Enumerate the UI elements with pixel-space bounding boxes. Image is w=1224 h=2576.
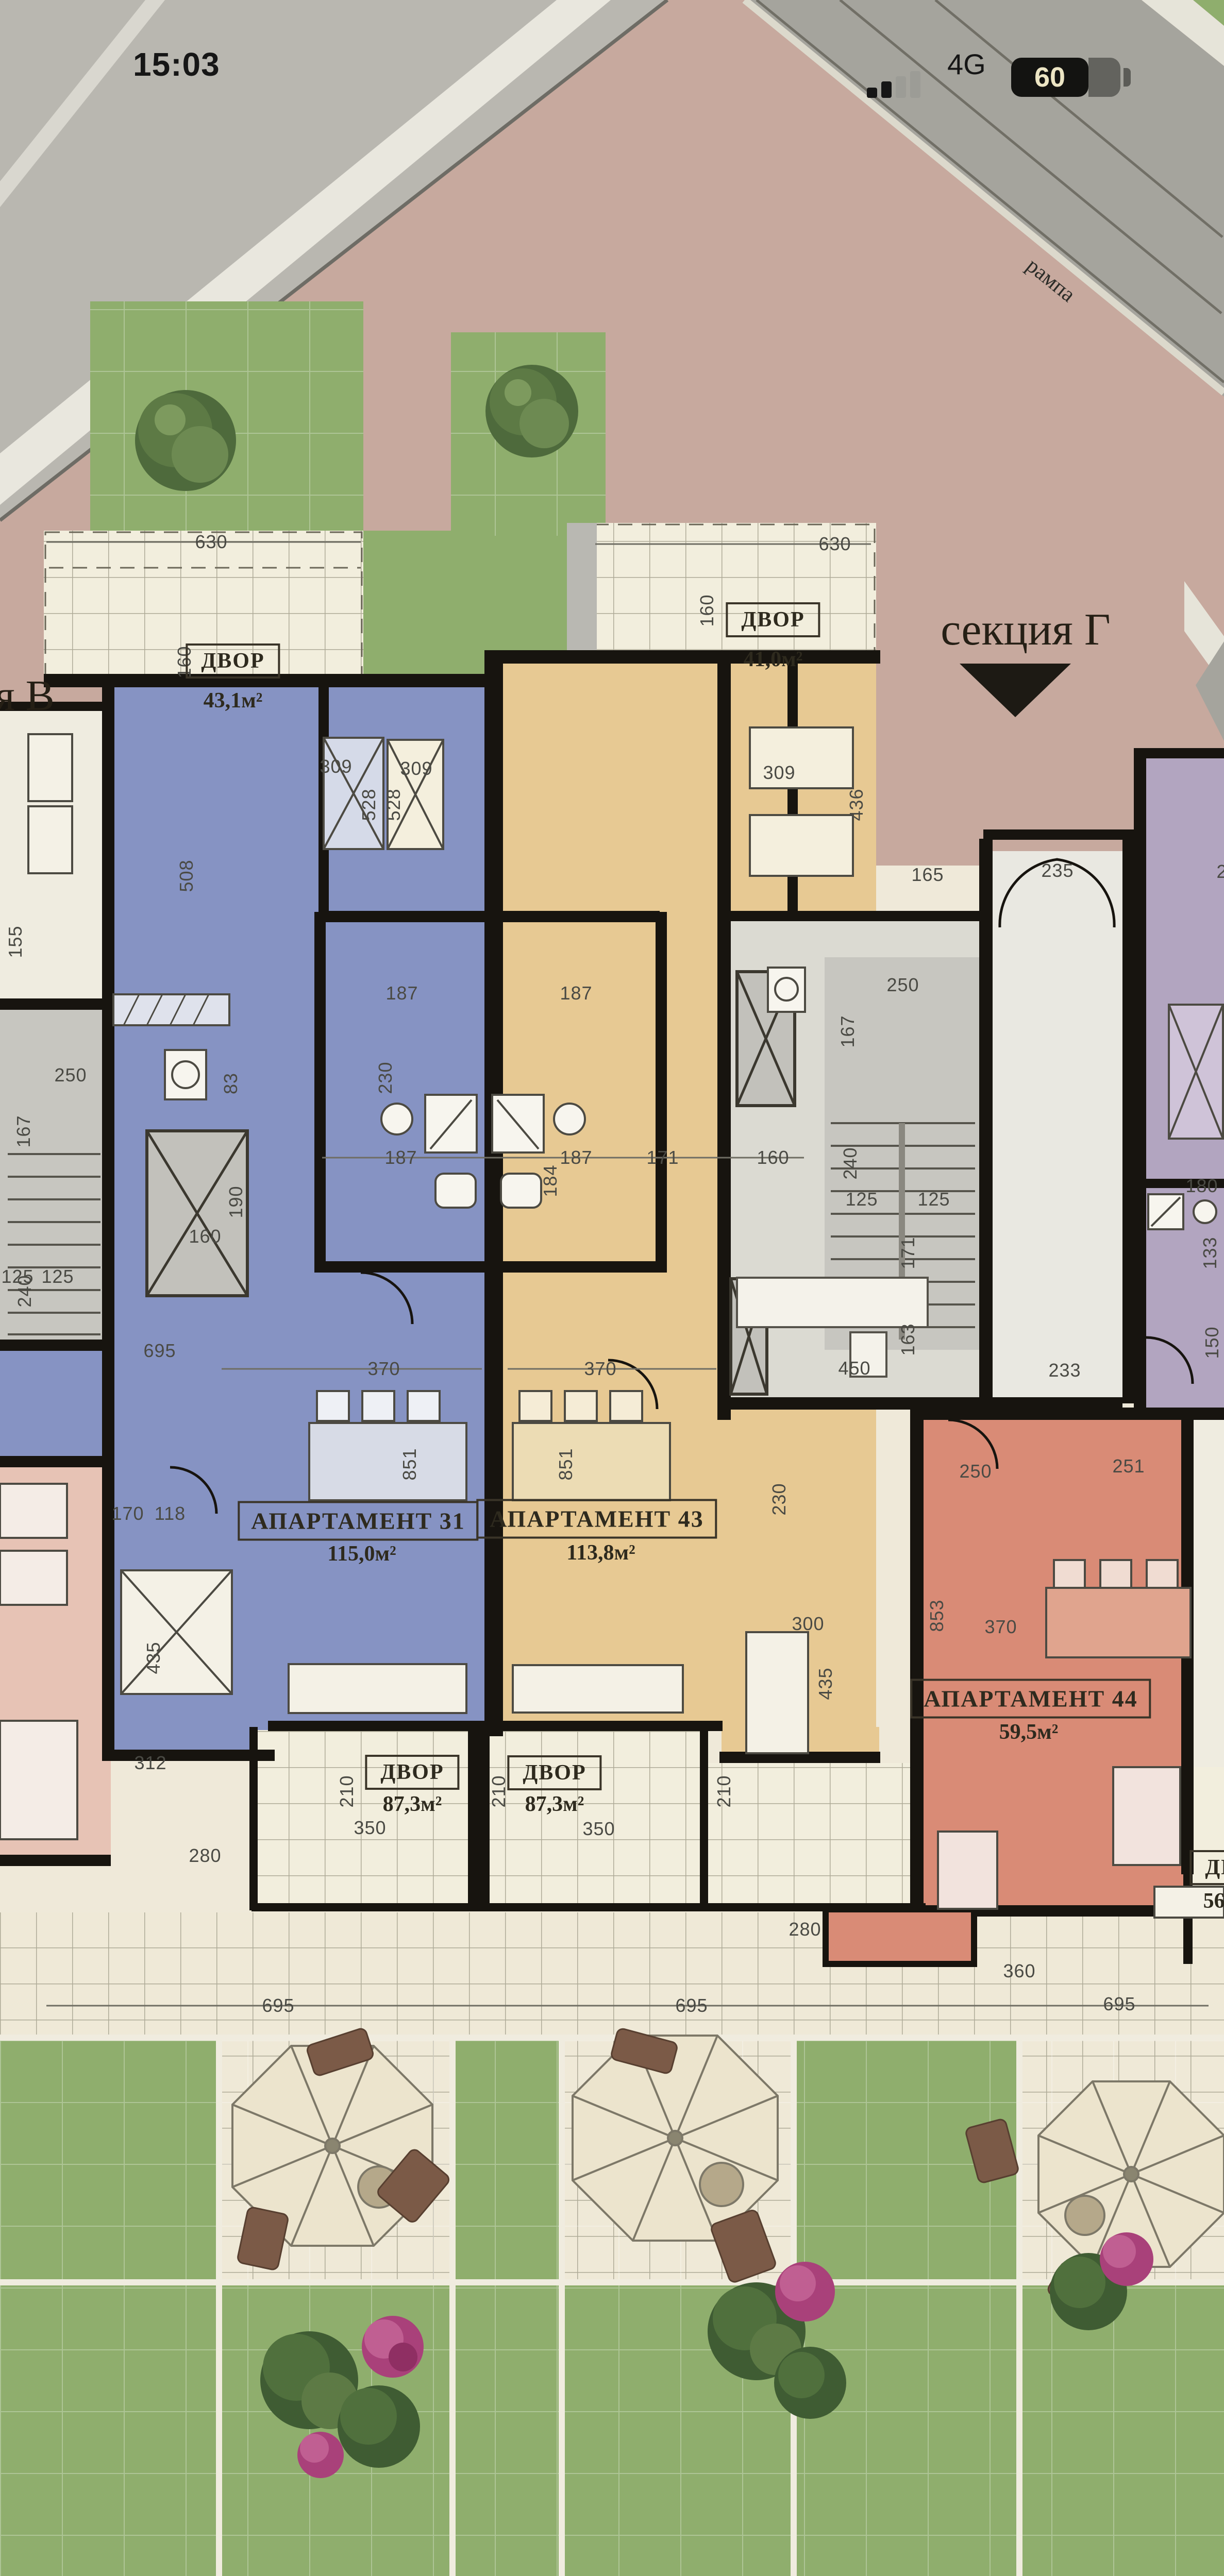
umbrella-icon <box>573 2036 778 2241</box>
garden <box>0 1912 1224 2576</box>
status-time: 15:03 <box>133 45 220 83</box>
battery-cap <box>1124 68 1131 87</box>
battery-icon: 60 <box>1011 58 1088 97</box>
status-bar: 15:03 4G 60 <box>0 41 1224 108</box>
tree-icon <box>485 365 578 457</box>
terrace-yard <box>44 531 363 681</box>
tree-icon <box>135 390 236 491</box>
phone-screenshot: секция Г я В рампа 630630160160309528309… <box>0 0 1224 2576</box>
planter <box>829 1912 971 1961</box>
floor-plan-drawing <box>0 0 1224 2576</box>
wardrobe <box>113 994 229 1025</box>
entrance-lobby <box>991 851 1122 1397</box>
signal-strength-icon <box>867 71 929 98</box>
network-type-label: 4G <box>947 47 986 81</box>
battery-level-remainder <box>1088 58 1120 97</box>
washer-icon <box>768 968 805 1012</box>
